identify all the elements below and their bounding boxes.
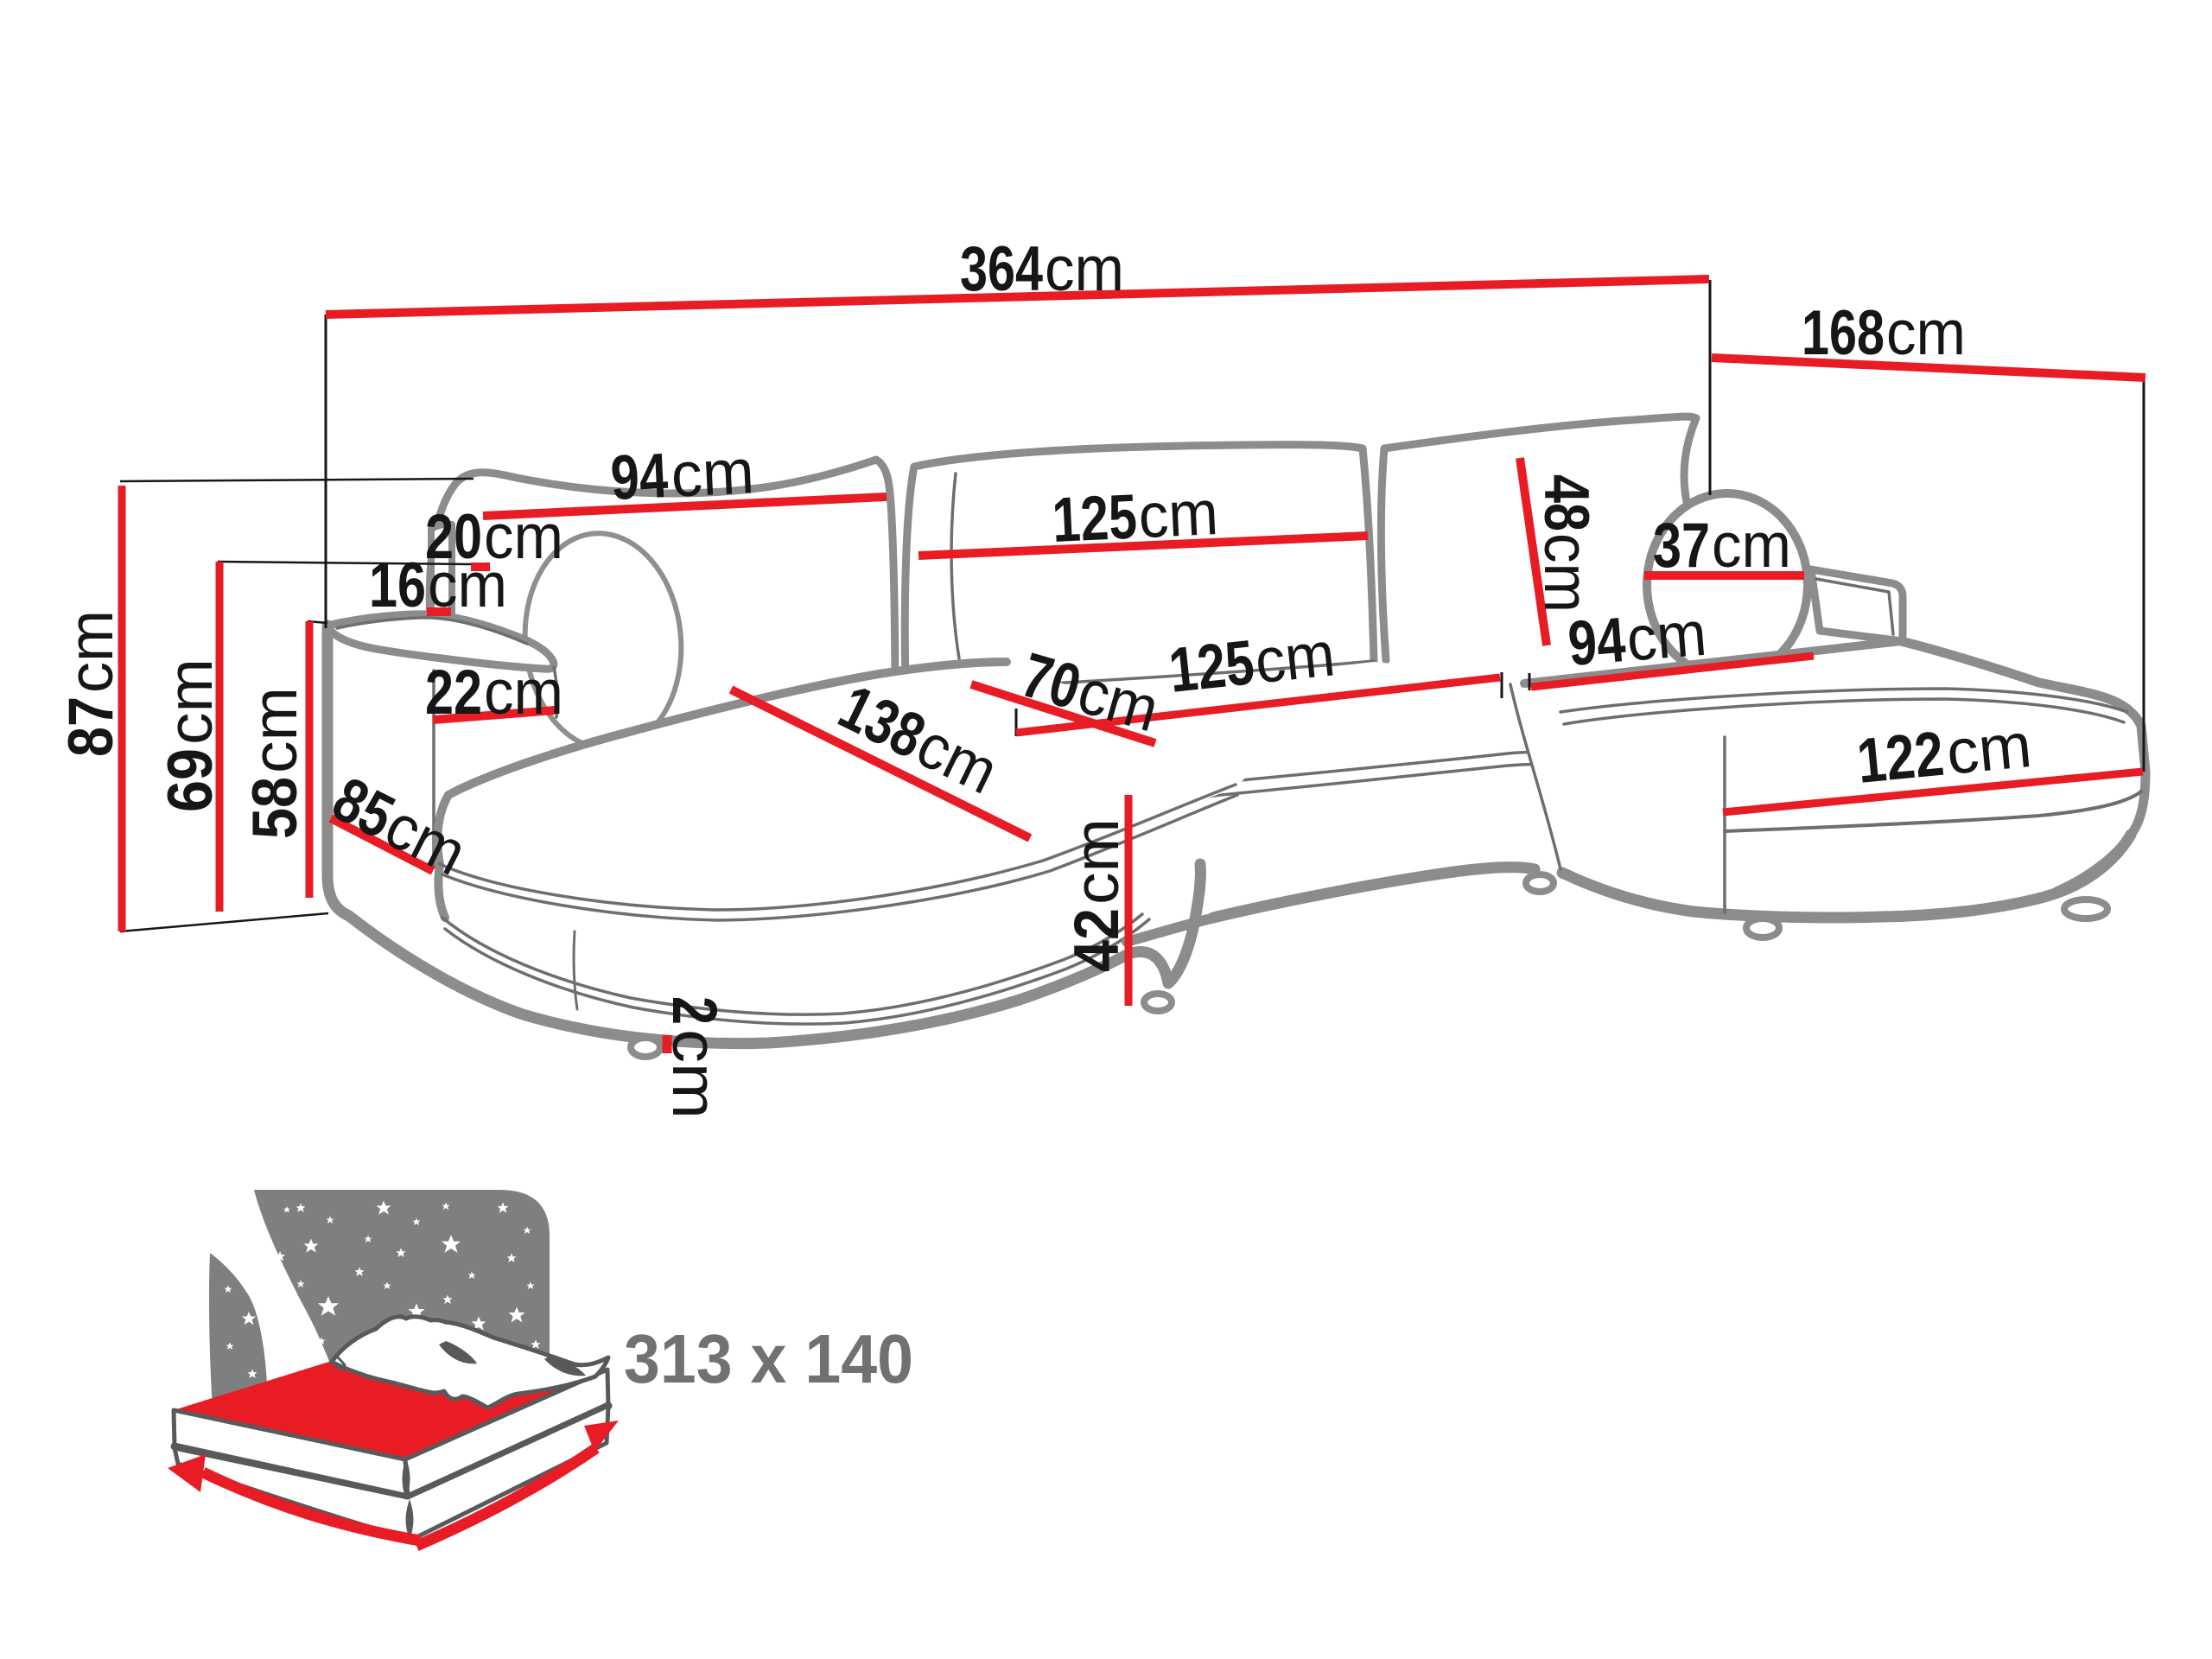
svg-text:22: 22 xyxy=(425,658,482,728)
svg-text:cm: cm xyxy=(428,550,507,620)
svg-text:125: 125 xyxy=(1166,627,1257,706)
svg-text:cm: cm xyxy=(1943,710,2034,788)
svg-text:cm: cm xyxy=(1252,619,1338,696)
svg-text:cm: cm xyxy=(670,436,756,510)
svg-text:168: 168 xyxy=(1802,298,1885,368)
svg-text:2: 2 xyxy=(659,996,729,1025)
svg-text:94: 94 xyxy=(609,441,670,513)
svg-text:69: 69 xyxy=(156,748,226,812)
svg-text:cm: cm xyxy=(240,687,310,773)
svg-text:58: 58 xyxy=(240,777,310,839)
svg-text:cm: cm xyxy=(1624,599,1709,675)
svg-text:cm: cm xyxy=(1045,234,1124,304)
svg-text:364: 364 xyxy=(960,234,1043,304)
svg-text:cm: cm xyxy=(1531,533,1601,613)
svg-text:cm: cm xyxy=(56,610,126,693)
svg-text:cm: cm xyxy=(1137,478,1220,551)
svg-text:122: 122 xyxy=(1854,719,1947,797)
svg-text:37: 37 xyxy=(1653,511,1710,581)
svg-text:42: 42 xyxy=(1062,908,1132,972)
svg-text:cm: cm xyxy=(659,1029,729,1119)
svg-text:48: 48 xyxy=(1531,474,1601,531)
svg-text:cm: cm xyxy=(484,658,563,728)
svg-text:125: 125 xyxy=(1051,481,1139,556)
svg-text:cm: cm xyxy=(156,658,226,745)
svg-text:16: 16 xyxy=(369,550,426,620)
svg-text:313 x 140: 313 x 140 xyxy=(624,1320,913,1397)
svg-text:87: 87 xyxy=(56,696,126,757)
svg-text:cm: cm xyxy=(1886,298,1966,368)
svg-text:cm: cm xyxy=(1712,511,1791,581)
svg-text:cm: cm xyxy=(1062,818,1132,905)
svg-text:94: 94 xyxy=(1566,605,1628,679)
